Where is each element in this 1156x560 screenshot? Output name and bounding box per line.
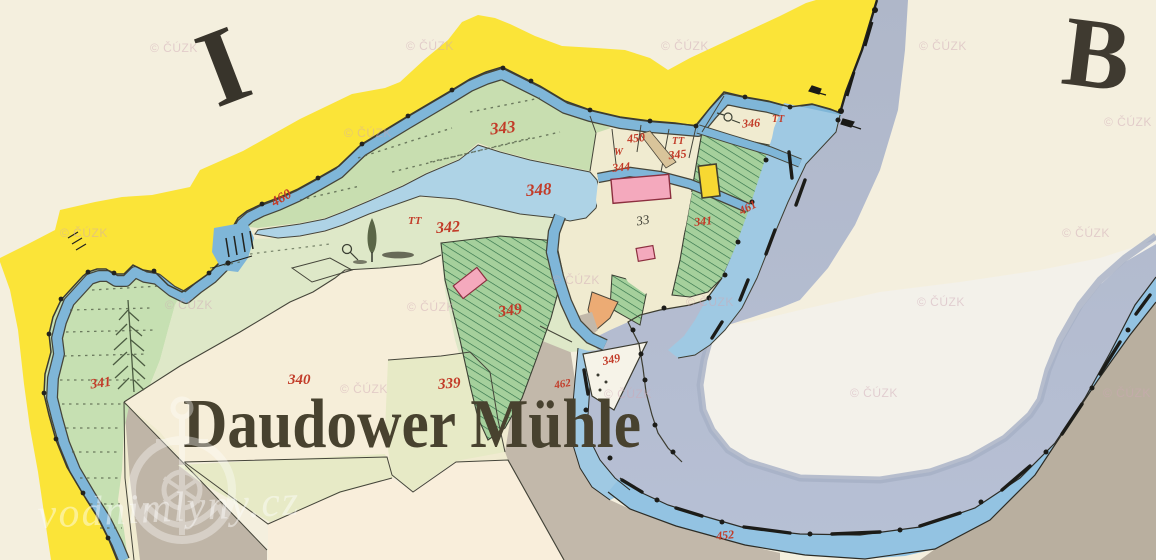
- svg-text:© ČÚZK: © ČÚZK: [1103, 385, 1151, 400]
- svg-text:450: 450: [625, 130, 645, 146]
- svg-text:© ČÚZK: © ČÚZK: [165, 297, 213, 312]
- svg-text:344: 344: [610, 159, 630, 175]
- svg-text:© ČÚZK: © ČÚZK: [919, 38, 967, 53]
- svg-text:343: 343: [488, 117, 517, 139]
- svg-text:© ČÚZK: © ČÚZK: [407, 299, 455, 314]
- svg-text:341: 341: [88, 375, 112, 393]
- svg-text:348: 348: [524, 179, 552, 200]
- svg-text:© ČÚZK: © ČÚZK: [60, 225, 108, 240]
- svg-text:© ČÚZK: © ČÚZK: [604, 386, 652, 401]
- svg-text:© ČÚZK: © ČÚZK: [661, 38, 709, 53]
- svg-text:W: W: [614, 147, 624, 158]
- svg-text:© ČÚZK: © ČÚZK: [686, 294, 734, 309]
- svg-text:© ČÚZK: © ČÚZK: [917, 294, 965, 309]
- svg-text:ТТ: ТТ: [672, 136, 685, 147]
- svg-text:452: 452: [714, 527, 734, 543]
- svg-text:ТТ: ТТ: [408, 215, 423, 227]
- svg-text:© ČÚZK: © ČÚZK: [340, 381, 388, 396]
- svg-text:ТТ: ТТ: [772, 114, 785, 125]
- svg-text:© ČÚZK: © ČÚZK: [1062, 225, 1110, 240]
- svg-text:342: 342: [434, 218, 460, 237]
- svg-text:© ČÚZK: © ČÚZK: [150, 40, 198, 55]
- svg-text:349: 349: [496, 301, 523, 321]
- svg-text:345: 345: [667, 146, 687, 162]
- svg-text:341: 341: [692, 213, 712, 229]
- svg-text:© ČÚZK: © ČÚZK: [344, 125, 392, 140]
- svg-text:© ČÚZK: © ČÚZK: [1104, 114, 1152, 129]
- svg-text:© ČÚZK: © ČÚZK: [406, 38, 454, 53]
- svg-text:346: 346: [741, 115, 761, 130]
- svg-text:Daudower Mühle: Daudower Mühle: [183, 386, 641, 463]
- svg-text:B: B: [1057, 0, 1137, 113]
- svg-text:© ČÚZK: © ČÚZK: [850, 385, 898, 400]
- svg-text:© ČÚZK: © ČÚZK: [552, 272, 600, 287]
